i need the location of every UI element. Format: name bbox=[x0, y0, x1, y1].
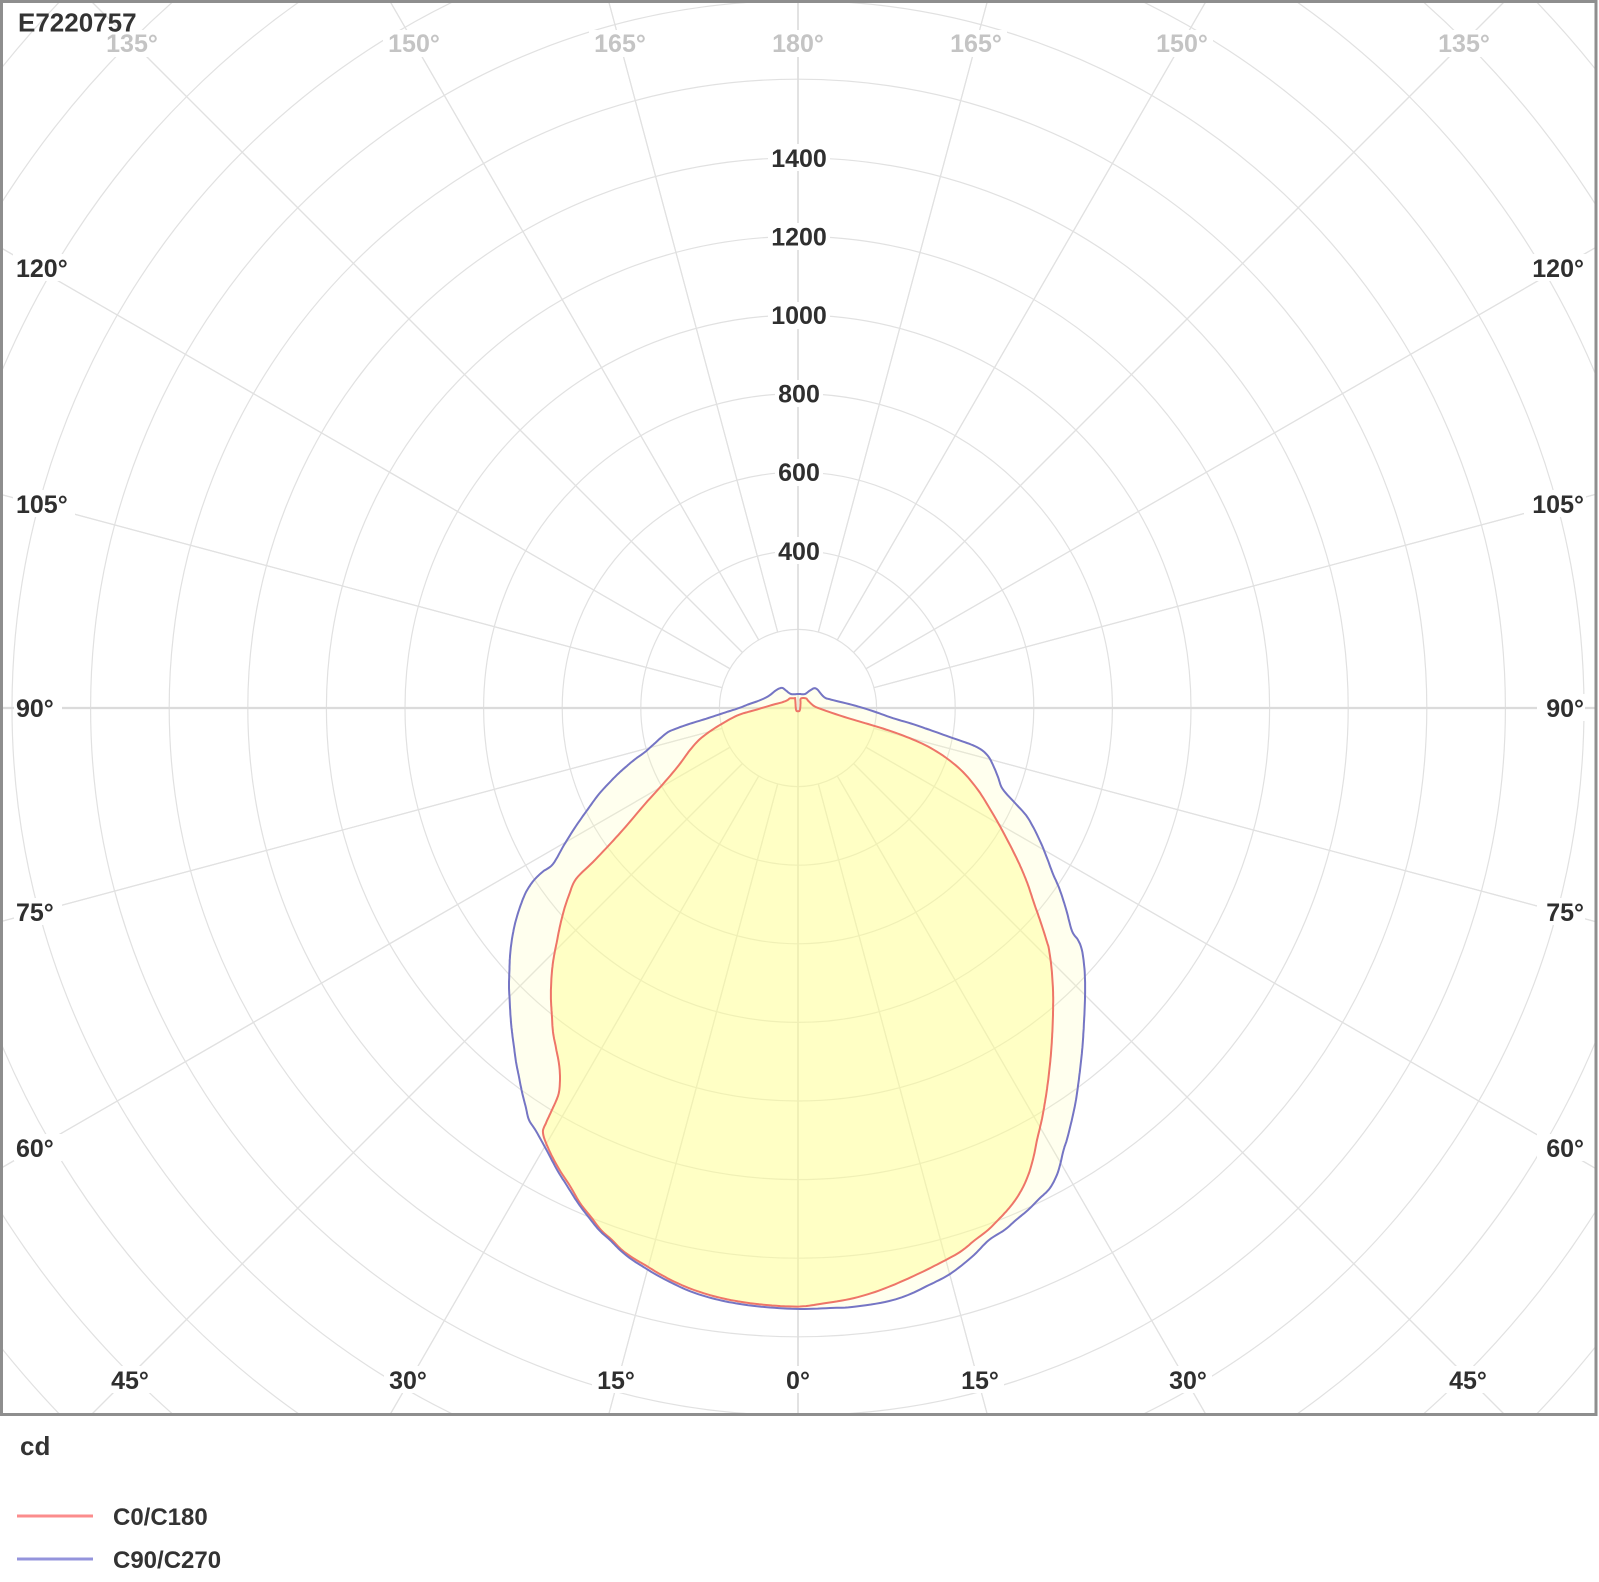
svg-text:135°: 135° bbox=[1438, 30, 1490, 58]
svg-text:165°: 165° bbox=[594, 30, 646, 58]
svg-text:1400: 1400 bbox=[771, 145, 827, 173]
svg-text:105°: 105° bbox=[16, 491, 68, 519]
svg-text:0°: 0° bbox=[786, 1367, 810, 1395]
svg-text:E7220757: E7220757 bbox=[18, 8, 137, 38]
svg-text:cd: cd bbox=[20, 1431, 50, 1461]
svg-text:15°: 15° bbox=[961, 1367, 999, 1395]
svg-text:180°: 180° bbox=[772, 30, 824, 58]
svg-text:600: 600 bbox=[778, 459, 820, 487]
svg-text:800: 800 bbox=[778, 381, 820, 409]
svg-text:45°: 45° bbox=[111, 1367, 149, 1395]
svg-text:120°: 120° bbox=[16, 255, 68, 283]
svg-text:75°: 75° bbox=[16, 899, 54, 927]
svg-text:C90/C270: C90/C270 bbox=[113, 1547, 221, 1574]
svg-text:30°: 30° bbox=[1169, 1367, 1207, 1395]
svg-text:1200: 1200 bbox=[771, 223, 827, 251]
svg-text:400: 400 bbox=[778, 538, 820, 566]
svg-text:105°: 105° bbox=[1532, 491, 1584, 519]
svg-text:150°: 150° bbox=[1156, 30, 1208, 58]
svg-text:30°: 30° bbox=[389, 1367, 427, 1395]
svg-text:1000: 1000 bbox=[771, 302, 827, 330]
svg-text:90°: 90° bbox=[1546, 695, 1584, 723]
svg-text:60°: 60° bbox=[16, 1135, 54, 1163]
svg-text:60°: 60° bbox=[1546, 1135, 1584, 1163]
svg-text:15°: 15° bbox=[597, 1367, 635, 1395]
svg-text:75°: 75° bbox=[1546, 899, 1584, 927]
svg-text:165°: 165° bbox=[950, 30, 1002, 58]
svg-text:120°: 120° bbox=[1532, 255, 1584, 283]
svg-text:45°: 45° bbox=[1449, 1367, 1487, 1395]
svg-text:150°: 150° bbox=[388, 30, 440, 58]
svg-text:90°: 90° bbox=[16, 695, 54, 723]
svg-text:C0/C180: C0/C180 bbox=[113, 1504, 208, 1531]
